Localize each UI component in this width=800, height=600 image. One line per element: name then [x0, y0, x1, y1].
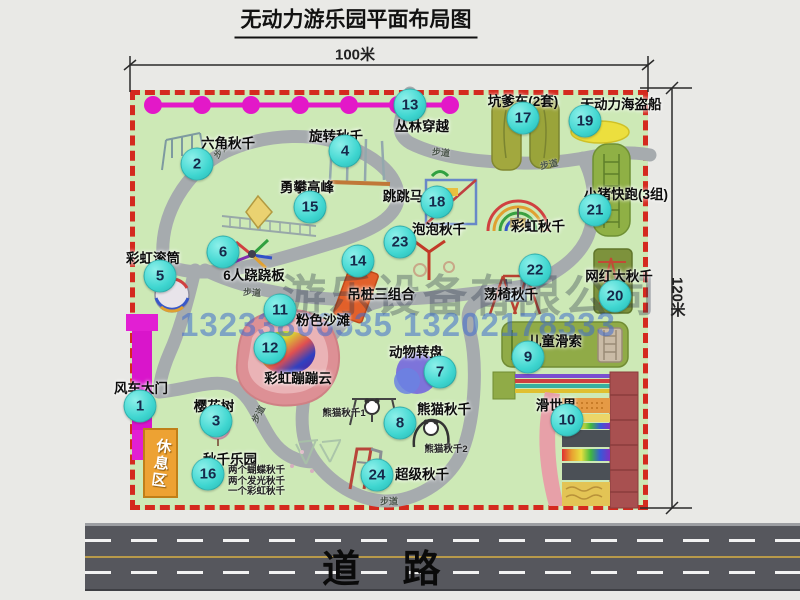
park-layout-screenshot: 无动力游乐园平面布局图 100米 120米 [0, 0, 800, 600]
badge-bubble-swing: 23 [384, 226, 417, 259]
badge-animal-carousel: 7 [424, 356, 457, 389]
badge-seesaw: 6 [207, 236, 240, 269]
label-panda-swing-1: 熊猫秋千1 [322, 405, 365, 419]
badge-swing-park: 16 [192, 458, 225, 491]
label-pink-beach: 粉色沙滩 [296, 309, 350, 329]
label-hexagon-swing: 六角秋千 [201, 132, 255, 152]
label-panda-swing: 熊猫秋千 [417, 398, 471, 418]
swing-park-notes: 两个蝴蝶秋千 两个发光秋千 一个彩虹秋千 [228, 466, 285, 498]
label-seesaw: 6人跷跷板 [223, 264, 285, 284]
badge-piggy-run: 21 [579, 194, 612, 227]
label-swing-chair: 荡椅秋千 [484, 283, 538, 303]
badge-rainbow-cloud: 12 [254, 332, 287, 365]
label-super-swing: 超级秋千 [395, 463, 449, 483]
rest-area-label: 休息区 [147, 436, 175, 489]
walkway-label: 步道 [431, 145, 450, 160]
badge-pit-car: 17 [507, 102, 540, 135]
rest-area-box: 休息区 [143, 428, 178, 498]
label-bubble-swing: 泡泡秋千 [412, 218, 466, 238]
road: 道 路 [85, 523, 800, 591]
walkway-label: 步道 [380, 495, 398, 508]
badge-big-swing: 20 [599, 280, 632, 313]
badge-rotating-swing: 4 [329, 135, 362, 168]
page-title: 无动力游乐园平面布局图 [235, 4, 478, 39]
badge-jungle-crossing: 13 [394, 89, 427, 122]
badge-panda-swing: 8 [384, 407, 417, 440]
badge-slide-world: 10 [551, 404, 584, 437]
label-rainbow-cloud: 彩虹蹦蹦云 [264, 367, 332, 387]
badge-cherry-tree: 3 [200, 405, 233, 438]
badge-peak-climbing: 15 [294, 191, 327, 224]
badge-super-swing: 24 [361, 459, 394, 492]
label-rainbow-swing: 彩虹秋千 [511, 215, 565, 235]
note-line: 两个蝴蝶秋千 [228, 466, 285, 477]
road-label: 道 路 [322, 538, 457, 593]
note-line: 一个彩虹秋千 [228, 487, 285, 498]
dimension-width-label: 100米 [335, 44, 375, 65]
badge-hexagon-swing: 2 [181, 148, 214, 181]
badge-pink-beach: 11 [264, 294, 297, 327]
label-panda-swing-2: 熊猫秋千2 [424, 441, 467, 455]
walkway-label: 步道 [243, 285, 262, 299]
badge-windmill-gate: 1 [124, 390, 157, 423]
badge-pirate-ship: 19 [569, 105, 602, 138]
badge-swing-chair: 22 [519, 254, 552, 287]
dimension-height-label: 120米 [667, 277, 688, 317]
label-jumping-horse: 跳跳马 [383, 185, 424, 205]
label-hanging-pile: 吊桩三组合 [347, 283, 415, 303]
badge-jumping-horse: 18 [421, 186, 454, 219]
badge-rainbow-roller: 5 [144, 260, 177, 293]
badge-hanging-pile: 14 [342, 245, 375, 278]
badge-kids-zipline: 9 [512, 341, 545, 374]
